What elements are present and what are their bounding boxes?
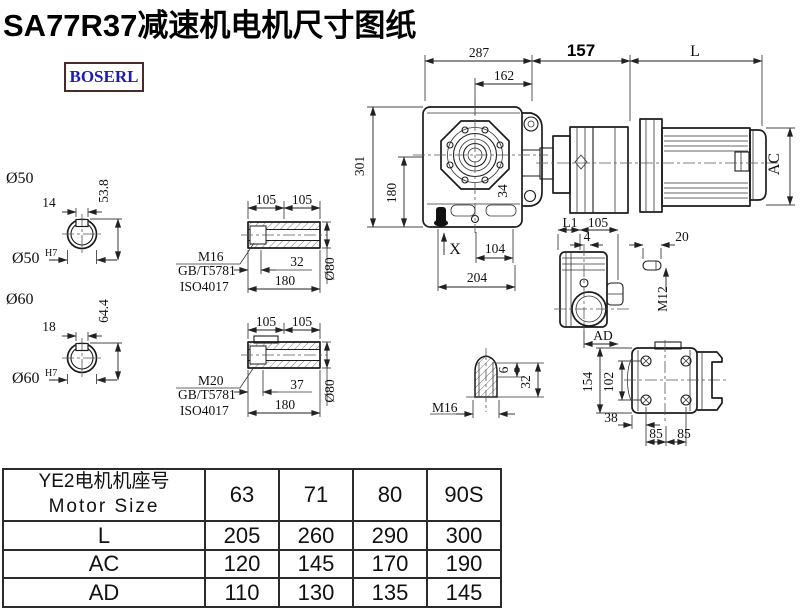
- cell: 170: [353, 550, 427, 578]
- hollow-shaft-bottom: 105 105 M20 GB/T5781 ISO4017 37 180 Ø80: [176, 314, 337, 418]
- dim-104: 104: [485, 241, 506, 256]
- breather-plug-detail: 6 32 M16: [430, 348, 544, 418]
- dim-dia80b: Ø80: [322, 379, 337, 402]
- label-dia60: Ø60: [6, 291, 34, 308]
- dim-105d: 105: [292, 314, 313, 329]
- main-view-dimensions: 301 180 34 X 104 204 AC: [352, 107, 795, 291]
- dim-L: L: [690, 43, 700, 60]
- col-63: 63: [205, 469, 279, 521]
- hollow-shaft-top: 105 105 M16 GB/T5781 ISO4017 32 180 Ø80: [176, 192, 337, 294]
- dim-85a: 85: [649, 426, 663, 441]
- header-zh: YE2电机机座号: [4, 470, 204, 495]
- col-90s: 90S: [427, 469, 501, 521]
- row-label-AD: AD: [3, 578, 205, 607]
- dim-6: 6: [496, 366, 511, 373]
- label-fit60-sup: H7: [45, 368, 57, 379]
- label-bolt-m16: M16: [198, 249, 224, 264]
- header-en: Motor Size: [4, 495, 204, 520]
- dim-4: 4: [584, 229, 591, 244]
- label-std-gbt5781: GB/T5781: [178, 263, 236, 278]
- dim-102: 102: [601, 372, 616, 392]
- dim-154: 154: [580, 372, 595, 393]
- label-bolt-m20: M20: [198, 373, 224, 388]
- dim-105b: 105: [292, 192, 313, 207]
- cell: 135: [353, 578, 427, 607]
- col-80: 80: [353, 469, 427, 521]
- shaft-section-50: Ø50 14 53.8 Ø50 H7: [6, 170, 122, 267]
- dim-dia80a: Ø80: [322, 257, 337, 280]
- dim-20: 20: [675, 229, 689, 244]
- label-fit50-sup: H7: [45, 248, 57, 259]
- gearbox-side-view: L1 105 4 AD 20 M12: [554, 215, 689, 348]
- dim-180-vertical: 180: [384, 183, 399, 204]
- dim-85b: 85: [677, 426, 691, 441]
- label-fit60: Ø60: [12, 370, 40, 387]
- dim-X: X: [449, 241, 461, 258]
- cell: 145: [427, 578, 501, 607]
- table-row: AC 120 145 170 190: [3, 550, 501, 578]
- cell: 110: [205, 578, 279, 607]
- row-label-AC: AC: [3, 550, 205, 578]
- dim-32: 32: [290, 254, 304, 269]
- dim-301: 301: [352, 156, 367, 176]
- dim-287: 287: [469, 45, 490, 60]
- dim-M12: M12: [655, 286, 670, 312]
- cell: 300: [427, 521, 501, 550]
- col-71: 71: [279, 469, 353, 521]
- dim-37: 37: [290, 377, 304, 392]
- dim-L1: L1: [563, 215, 578, 230]
- motor-side-view: [536, 119, 778, 212]
- label-std-gbt5781-b: GB/T5781: [178, 387, 236, 402]
- motor-adapter: [522, 127, 628, 213]
- dim-64.4: 64.4: [96, 299, 111, 323]
- label-std-iso4017-b: ISO4017: [180, 403, 229, 418]
- dim-105-side: 105: [588, 215, 609, 230]
- dim-38: 38: [604, 410, 618, 425]
- label-fit50: Ø50: [12, 250, 40, 267]
- dim-AC: AC: [766, 153, 783, 175]
- dim-180a: 180: [275, 273, 296, 288]
- dim-162: 162: [494, 68, 514, 83]
- dim-34: 34: [495, 184, 510, 198]
- label-m16-plug: M16: [432, 400, 458, 415]
- cell: 260: [279, 521, 353, 550]
- row-label-L: L: [3, 521, 205, 550]
- cell: 120: [205, 550, 279, 578]
- dim-105a: 105: [256, 192, 277, 207]
- dim-53.8: 53.8: [96, 179, 111, 203]
- table-row: AD 110 130 135 145: [3, 578, 501, 607]
- dim-157: 157: [567, 41, 595, 60]
- dim-key-width-14: 14: [42, 195, 56, 210]
- dim-key-width-18: 18: [42, 319, 56, 334]
- dim-180b: 180: [275, 397, 296, 412]
- label-std-iso4017: ISO4017: [180, 279, 229, 294]
- cell: 190: [427, 550, 501, 578]
- gearbox-front-view: [413, 98, 548, 233]
- gearbox-back-view: 154 102 38 85 85: [580, 340, 726, 446]
- dim-AD: AD: [593, 328, 613, 343]
- table-header-row: YE2电机机座号 Motor Size 63 71 80 90S: [3, 469, 501, 521]
- cell: 130: [279, 578, 353, 607]
- table-row: L 205 260 290 300: [3, 521, 501, 550]
- cell: 145: [279, 550, 353, 578]
- motor-size-table: YE2电机机座号 Motor Size 63 71 80 90S L 205 2…: [2, 468, 502, 608]
- shaft-section-60: Ø60 18 64.4 Ø60 H7: [6, 291, 122, 387]
- header-motor-size: YE2电机机座号 Motor Size: [3, 469, 205, 521]
- dim-204: 204: [467, 270, 488, 285]
- cell: 205: [205, 521, 279, 550]
- cell: 290: [353, 521, 427, 550]
- dim-105c: 105: [256, 314, 277, 329]
- dim-32-plug: 32: [518, 375, 533, 389]
- drawing-page: SA77R37减速机电机尺寸图纸 BOSERL: [0, 0, 800, 613]
- label-dia50: Ø50: [6, 170, 34, 187]
